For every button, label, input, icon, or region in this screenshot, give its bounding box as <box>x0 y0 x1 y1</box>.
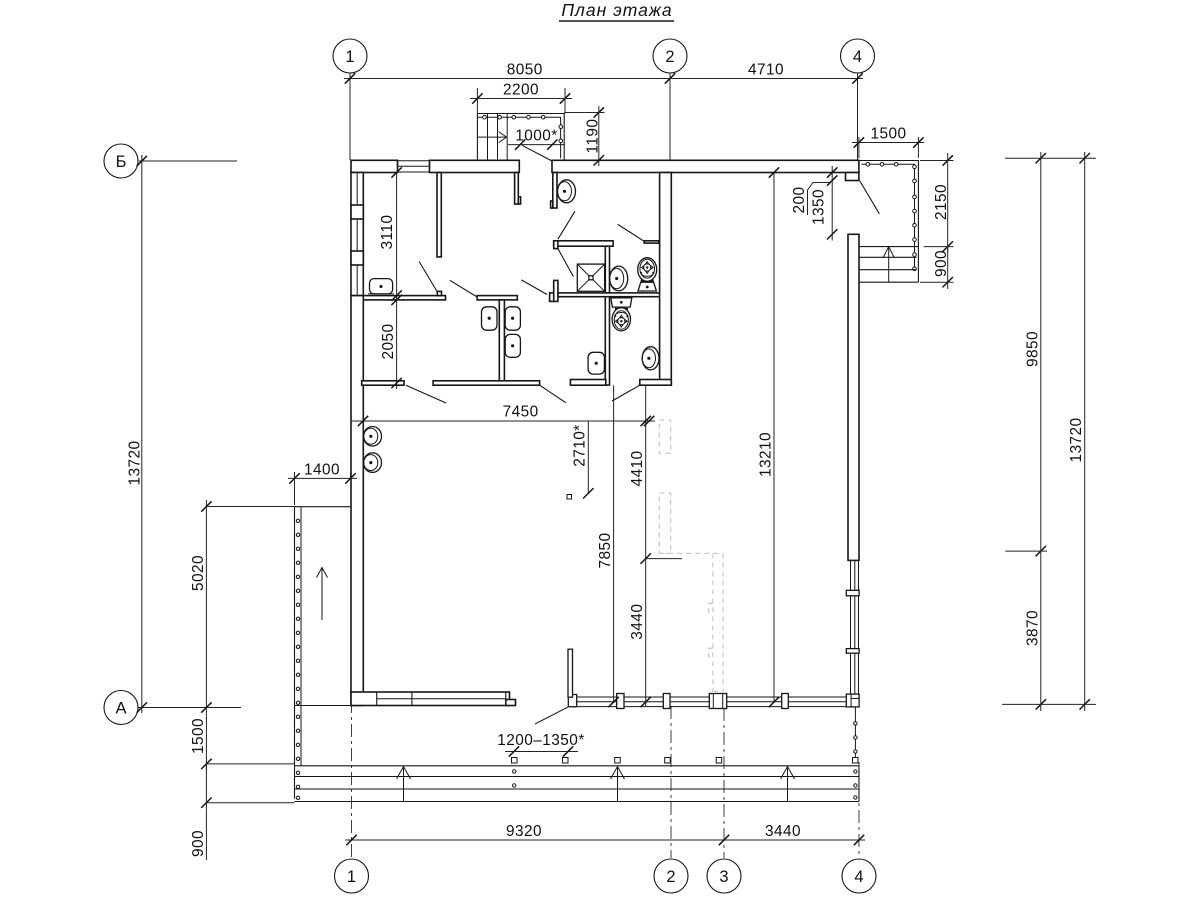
svg-text:2200: 2200 <box>503 82 539 99</box>
svg-text:1000*: 1000* <box>515 128 557 145</box>
svg-text:13210: 13210 <box>757 432 774 477</box>
svg-text:2: 2 <box>665 48 674 66</box>
svg-text:9850: 9850 <box>1024 331 1041 367</box>
svg-text:7450: 7450 <box>503 404 539 421</box>
svg-text:13720: 13720 <box>1068 417 1085 462</box>
svg-text:1190: 1190 <box>584 119 601 154</box>
svg-text:3440: 3440 <box>765 823 801 840</box>
svg-text:1400: 1400 <box>304 461 340 478</box>
svg-text:1500: 1500 <box>190 718 207 754</box>
svg-text:3110: 3110 <box>379 215 396 250</box>
svg-text:200: 200 <box>791 186 808 213</box>
svg-text:3440: 3440 <box>629 604 646 640</box>
svg-text:3: 3 <box>719 868 728 886</box>
svg-text:1200–1350*: 1200–1350* <box>497 732 585 749</box>
svg-text:2710*: 2710* <box>571 424 588 466</box>
svg-text:5020: 5020 <box>190 555 207 591</box>
svg-text:13720: 13720 <box>126 440 143 485</box>
svg-text:4: 4 <box>854 868 863 886</box>
svg-text:1500: 1500 <box>870 126 906 143</box>
svg-text:План этажа: План этажа <box>561 0 672 20</box>
svg-text:3870: 3870 <box>1024 610 1041 646</box>
svg-text:7850: 7850 <box>597 532 614 568</box>
svg-text:2050: 2050 <box>380 323 397 359</box>
svg-text:2150: 2150 <box>933 184 950 220</box>
svg-text:900: 900 <box>190 830 207 857</box>
svg-text:4: 4 <box>853 48 862 66</box>
svg-text:1: 1 <box>347 868 356 886</box>
svg-text:9320: 9320 <box>506 823 542 840</box>
svg-text:4410: 4410 <box>629 450 646 486</box>
svg-text:1: 1 <box>345 48 354 66</box>
svg-text:4710: 4710 <box>748 62 784 79</box>
svg-text:А: А <box>115 700 126 718</box>
svg-text:Б: Б <box>116 153 127 171</box>
svg-text:900: 900 <box>933 250 950 277</box>
svg-text:2: 2 <box>666 868 675 886</box>
svg-text:8050: 8050 <box>507 62 543 79</box>
svg-text:1350: 1350 <box>811 189 828 225</box>
